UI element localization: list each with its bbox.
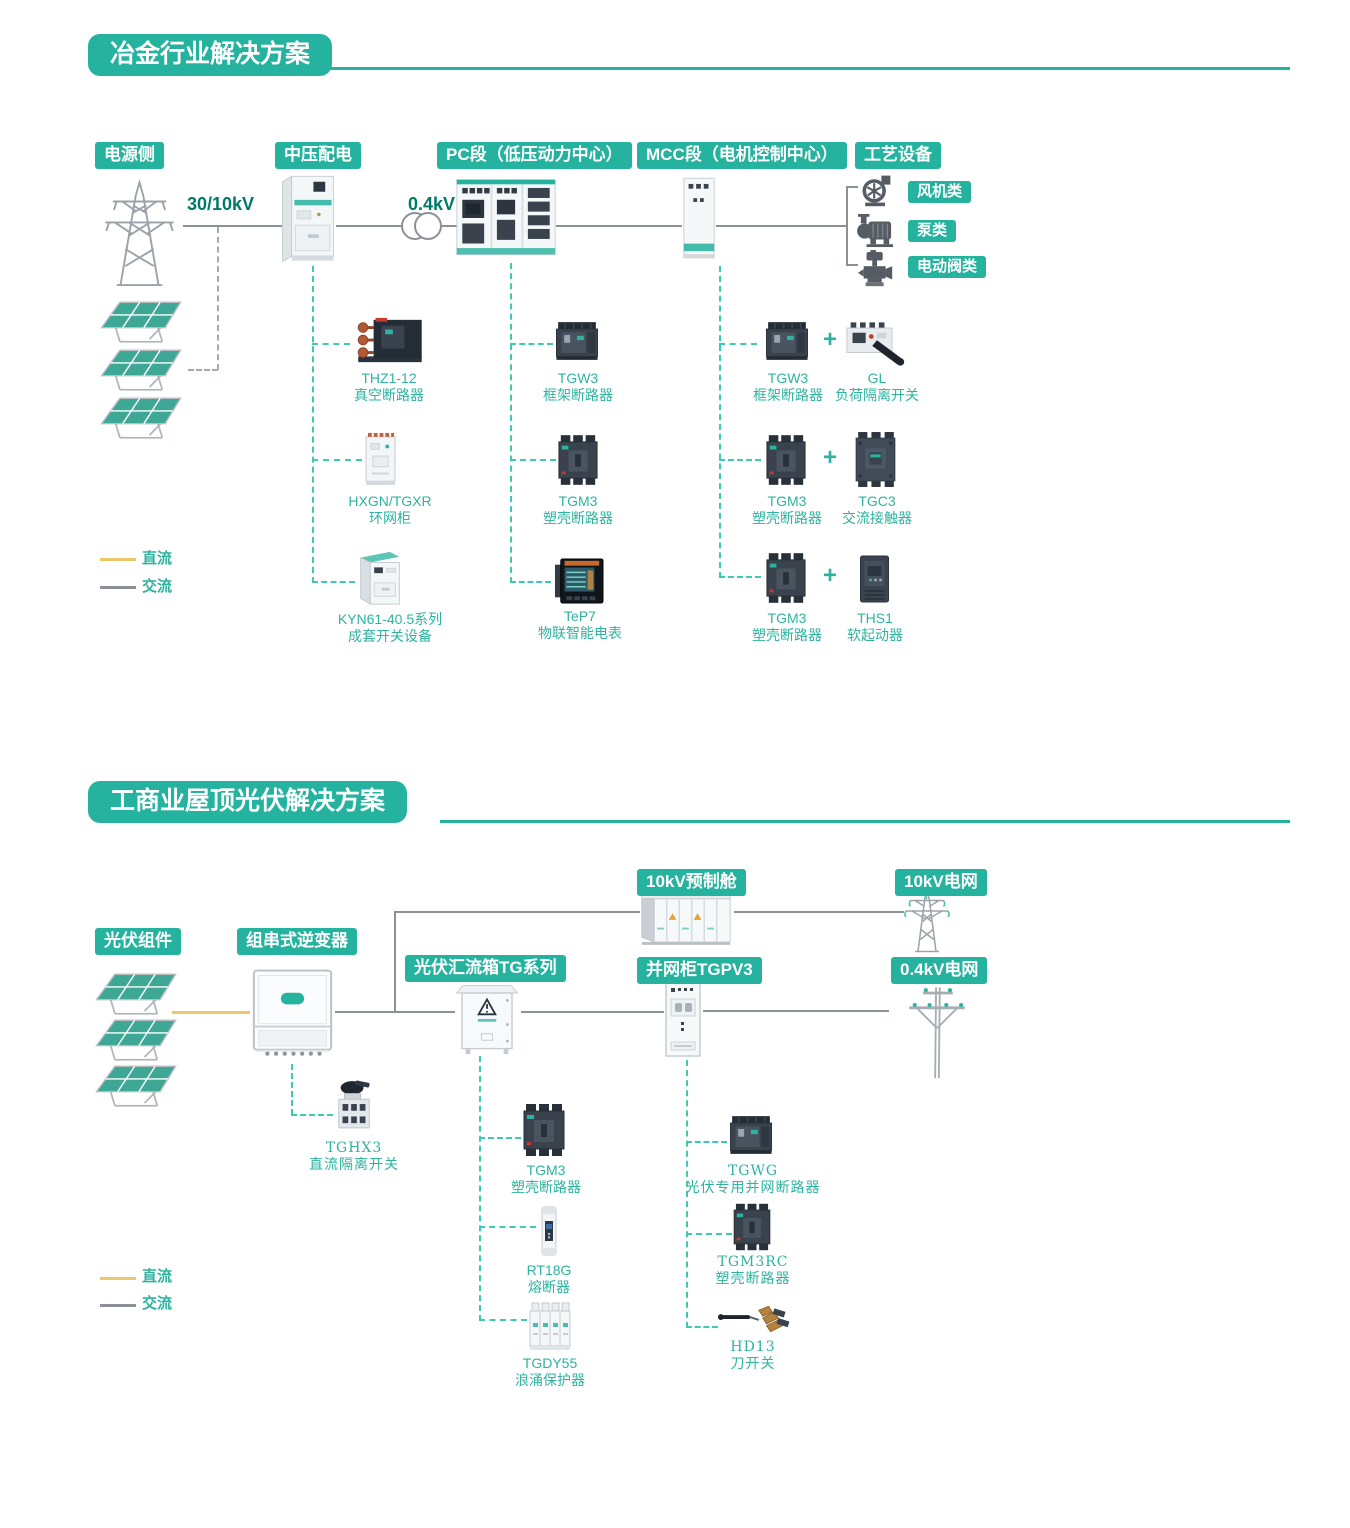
plus-sign: + <box>823 562 837 590</box>
mcc-cabinet-image <box>681 174 717 264</box>
product-label-kyn61: KYN61-40.5系列 成套开关设备 <box>338 611 442 645</box>
product-model: HXGN/TGXR <box>348 493 431 510</box>
product-desc: 环网柜 <box>348 510 431 527</box>
legend-ac-label: 交流 <box>142 1295 172 1313</box>
product-label-rt18g: RT18G 熔断器 <box>527 1262 572 1296</box>
product-model: TGDY55 <box>515 1355 585 1372</box>
product-label-tgwg: TGWG 光伏专用并网断路器 <box>686 1163 821 1197</box>
stage-10kv-grid: 10kV电网 <box>895 869 987 896</box>
fan-icon <box>858 172 894 208</box>
stage-mv-distribution: 中压配电 <box>275 142 361 169</box>
legend-ac-label: 交流 <box>142 578 172 596</box>
solar-panel-icon <box>95 1062 180 1110</box>
mcc-product-branch <box>719 576 761 578</box>
product-label-tep7: TeP7 物联智能电表 <box>538 608 622 642</box>
legend-ac-line <box>100 586 136 589</box>
product-label-tghx3: TGHX3 直流隔离开关 <box>309 1140 399 1174</box>
plus-sign: + <box>823 444 837 472</box>
stage-power-side: 电源侧 <box>95 142 164 169</box>
transformer-symbol <box>414 212 442 240</box>
stage-prefab-cabin: 10kV预制舱 <box>637 869 746 896</box>
ac-line-cabin-to-grid <box>734 911 904 913</box>
hxgn-image <box>362 431 399 487</box>
product-label-pc-tgw3: TGW3 框架断路器 <box>543 370 613 404</box>
product-desc: 负荷隔离开关 <box>835 387 919 404</box>
stage-pv-modules: 光伏组件 <box>95 928 181 955</box>
product-label-mcc-tgw3: TGW3 框架断路器 <box>753 370 823 404</box>
stage-04kv-grid: 0.4kV电网 <box>891 957 987 984</box>
product-label-tgc3: TGC3 交流接触器 <box>842 493 912 527</box>
cabinet-product-branch <box>686 1326 718 1328</box>
tep7-meter-image <box>553 557 605 605</box>
product-model: THZ1-12 <box>354 370 424 387</box>
tgm3-image <box>521 1102 567 1158</box>
mv-cabinet-image <box>279 170 337 266</box>
tgdy55-spd-image <box>527 1300 573 1352</box>
stage-mcc-section: MCC段（电机控制中心） <box>637 142 847 169</box>
solar-panel-icon <box>95 970 180 1018</box>
product-label-ths1: THS1 软起动器 <box>847 610 903 644</box>
pv-feed-dashed-vertical <box>217 227 219 370</box>
voltage-label-lv: 0.4kV <box>408 194 455 215</box>
product-label-tgm3rc: TGM3RC 塑壳断路器 <box>716 1254 791 1288</box>
product-model: TGM3 <box>752 493 822 510</box>
product-desc: 交流接触器 <box>842 510 912 527</box>
stage-pc-section: PC段（低压动力中心） <box>437 142 632 169</box>
product-desc: 刀开关 <box>730 1356 775 1373</box>
product-desc: 塑壳断路器 <box>543 510 613 527</box>
combiner-product-branch <box>479 1137 521 1139</box>
product-desc: 光伏专用并网断路器 <box>686 1180 821 1197</box>
tgc3-contactor-image <box>852 431 899 488</box>
product-model: TGC3 <box>842 493 912 510</box>
mv-product-trunk <box>312 266 314 583</box>
thz1-12-image <box>350 316 428 366</box>
tgm3-image <box>765 433 807 487</box>
prefab-cabin-image <box>638 888 734 948</box>
product-desc: 软起动器 <box>847 627 903 644</box>
utility-pole-icon <box>898 980 976 1082</box>
valve-icon <box>858 250 896 290</box>
tghx3-image <box>333 1076 375 1134</box>
product-label-pc-tgm3: TGM3 塑壳断路器 <box>543 493 613 527</box>
tgwg-image <box>727 1110 775 1160</box>
pump-icon <box>854 214 898 248</box>
ac-line-tower-to-mv <box>183 225 282 227</box>
inverter-product-trunk <box>291 1064 293 1115</box>
mcc-product-branch <box>719 459 761 461</box>
product-model: TeP7 <box>538 608 622 625</box>
product-model: TGM3 <box>543 493 613 510</box>
gl-switch-image <box>845 321 907 367</box>
product-model: TGM3 <box>752 610 822 627</box>
solution-diagram-page: 冶金行业解决方案 电源侧 中压配电 PC段（低压动力中心） MCC段（电机控制中… <box>0 0 1350 1528</box>
equip-badge-pump: 泵类 <box>908 220 956 242</box>
product-desc: 熔断器 <box>527 1279 572 1296</box>
tgw3-image <box>553 316 601 366</box>
product-desc: 物联智能电表 <box>538 625 622 642</box>
ths1-softstarter-image <box>857 554 892 606</box>
equipment-bracket-stub-top <box>846 186 858 188</box>
equip-badge-fan: 风机类 <box>908 181 971 203</box>
tgm3rc-image <box>732 1202 772 1252</box>
product-desc: 塑壳断路器 <box>511 1179 581 1196</box>
product-model: RT18G <box>527 1262 572 1279</box>
mv-product-branch <box>312 343 350 345</box>
hd13-knife-switch-image <box>716 1304 790 1336</box>
pc-product-trunk <box>510 263 512 583</box>
product-label-hxgn: HXGN/TGXR 环网柜 <box>348 493 431 527</box>
product-label-mcc-tgm3-2: TGM3 塑壳断路器 <box>752 610 822 644</box>
cabinet-product-branch <box>686 1141 727 1143</box>
equip-badge-valve: 电动阀类 <box>908 256 986 278</box>
tgm3-image <box>765 551 807 605</box>
string-inverter-image <box>250 966 335 1064</box>
combiner-product-trunk <box>479 1056 481 1321</box>
product-model: TGW3 <box>543 370 613 387</box>
product-label-tgdy55: TGDY55 浪涌保护器 <box>515 1355 585 1389</box>
grid-cabinet-image <box>663 980 703 1060</box>
solar-panel-icon <box>95 1016 180 1064</box>
tgw3-image <box>763 316 811 366</box>
solar-panel-icon <box>100 394 185 442</box>
product-desc: 成套开关设备 <box>338 628 442 645</box>
stage-grid-cabinet: 并网柜TGPV3 <box>637 957 762 984</box>
product-desc: 浪涌保护器 <box>515 1372 585 1389</box>
equipment-bracket <box>846 186 848 266</box>
combiner-product-branch <box>479 1226 536 1228</box>
dc-line-panels-to-inverter <box>172 1011 250 1014</box>
stage-combiner-box: 光伏汇流箱TG系列 <box>405 955 566 982</box>
legend-dc-label: 直流 <box>142 1268 172 1286</box>
combiner-product-branch <box>479 1319 527 1321</box>
product-label-hd13: HD13 刀开关 <box>730 1339 775 1373</box>
product-model: GL <box>835 370 919 387</box>
plus-sign: + <box>823 326 837 354</box>
pc-switchboard-image <box>455 174 557 262</box>
transmission-tower-icon <box>92 173 187 287</box>
tgm3-image <box>557 433 599 487</box>
grid-tower-icon <box>900 886 954 954</box>
section1-title-rule <box>325 67 1290 70</box>
product-model: TGM3 <box>511 1162 581 1179</box>
pc-product-branch <box>510 459 556 461</box>
product-desc: 塑壳断路器 <box>752 510 822 527</box>
voltage-label-grid: 30/10kV <box>187 194 254 215</box>
cabinet-product-branch <box>686 1233 732 1235</box>
section1-title: 冶金行业解决方案 <box>88 34 332 76</box>
product-desc: 框架断路器 <box>543 387 613 404</box>
product-label-mcc-tgm3-1: TGM3 塑壳断路器 <box>752 493 822 527</box>
legend-dc-line <box>100 1277 136 1280</box>
legend-dc-line <box>100 558 136 561</box>
ac-line-junction-riser <box>394 912 396 1012</box>
mv-product-branch <box>312 581 355 583</box>
product-desc: 塑壳断路器 <box>752 627 822 644</box>
product-desc: 塑壳断路器 <box>716 1271 791 1288</box>
product-model: TGW3 <box>753 370 823 387</box>
product-label-thz1-12: THZ1-12 真空断路器 <box>354 370 424 404</box>
section2-title-rule <box>440 820 1290 823</box>
product-desc: 直流隔离开关 <box>309 1157 399 1174</box>
section2-title: 工商业屋顶光伏解决方案 <box>88 781 407 823</box>
ac-line-to-cabin <box>394 911 640 913</box>
solar-panel-icon <box>100 346 185 394</box>
ac-line-pc-to-mcc <box>556 225 682 227</box>
ac-line-cabinet-to-pole <box>703 1010 889 1012</box>
kyn61-image <box>356 548 402 608</box>
solar-panel-icon <box>100 298 185 346</box>
equipment-bracket-stub-bottom <box>846 264 858 266</box>
product-desc: 真空断路器 <box>354 387 424 404</box>
product-model: HD13 <box>730 1339 775 1356</box>
pc-product-branch <box>510 343 553 345</box>
ac-line-combiner-to-cabinet <box>521 1011 664 1013</box>
combiner-box-image <box>453 980 521 1056</box>
product-model: THS1 <box>847 610 903 627</box>
mcc-product-trunk <box>719 266 721 578</box>
pc-product-branch <box>510 581 551 583</box>
product-label-combiner-tgm3: TGM3 塑壳断路器 <box>511 1162 581 1196</box>
legend-dc-label: 直流 <box>142 550 172 568</box>
product-model: TGWG <box>686 1163 821 1180</box>
product-model: KYN61-40.5系列 <box>338 611 442 628</box>
mcc-product-branch <box>719 343 757 345</box>
stage-process-equipment: 工艺设备 <box>855 142 941 169</box>
pv-feed-dashed-horizontal <box>188 369 218 371</box>
product-model: TGHX3 <box>309 1140 399 1157</box>
legend-ac-line <box>100 1304 136 1307</box>
product-label-gl: GL 负荷隔离开关 <box>835 370 919 404</box>
stage-string-inverter: 组串式逆变器 <box>237 928 357 955</box>
ac-line-mcc-to-equipment <box>716 225 847 227</box>
product-model: TGM3RC <box>716 1254 791 1271</box>
product-desc: 框架断路器 <box>753 387 823 404</box>
rt18g-fuse-image <box>537 1204 561 1258</box>
inverter-product-branch <box>291 1114 333 1116</box>
mv-product-branch <box>312 459 362 461</box>
